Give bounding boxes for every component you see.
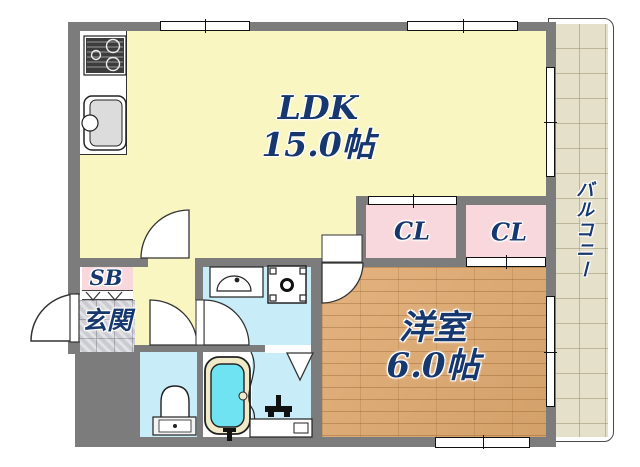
- shower-faucet-icon: [265, 395, 292, 417]
- bathtub-icon: [205, 357, 250, 441]
- ldk-size: 15.0帖: [261, 127, 374, 164]
- fixtures-overlay: [0, 0, 640, 467]
- washroom-door: [196, 300, 249, 345]
- bath-counter-icon: [250, 419, 312, 437]
- ldk-label: LDK 15.0帖: [261, 90, 374, 164]
- ldk-door: [141, 210, 189, 258]
- stove-icon: [84, 36, 126, 75]
- western-room-label: 洋室 6.0帖: [386, 309, 479, 385]
- closet-left-label: CL: [394, 219, 430, 246]
- western-room-size: 6.0帖: [386, 347, 479, 385]
- bathroom-door: [265, 345, 313, 380]
- hall-door: [150, 300, 197, 345]
- ldk-name: LDK: [261, 90, 374, 127]
- entrance-door: [31, 294, 79, 342]
- kitchen-sink-icon: [82, 96, 126, 150]
- washing-machine-pan-icon: [268, 266, 306, 303]
- closet-right-label: CL: [491, 220, 527, 247]
- toilet-icon: [153, 386, 196, 435]
- washbasin-icon: [210, 267, 263, 297]
- western-room-door: [322, 235, 363, 303]
- shoe-box-label: SB: [90, 266, 123, 290]
- entrance-label: 玄関: [82, 307, 132, 335]
- western-room-name: 洋室: [386, 309, 479, 347]
- shoe-box-door-marks: [86, 292, 122, 300]
- balcony-label: バルコニー: [570, 180, 596, 280]
- floor-plan: LDK 15.0帖 洋室 6.0帖 CL CL SB 玄関 バルコニー: [0, 0, 640, 467]
